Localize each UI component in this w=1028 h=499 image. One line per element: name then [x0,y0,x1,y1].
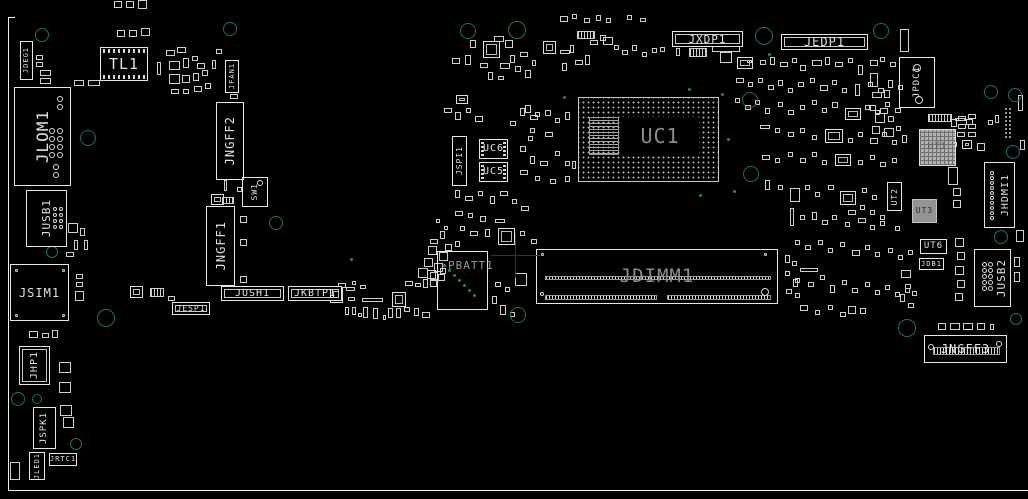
pin-ticks-top [103,49,145,53]
smd-pad [36,62,43,67]
smd-pad [436,219,440,223]
pin-header [577,31,595,39]
smd-pad [822,108,827,113]
smd-pad [492,296,497,304]
qfn-chip [498,228,515,245]
smd-pad [627,15,632,20]
smd-pad [570,45,574,53]
pin-dot [990,216,994,220]
smd-pad [606,18,611,23]
board-outline [8,17,15,18]
smd-pad [652,48,657,53]
smd-pad [455,241,460,247]
pin-dot [53,213,57,217]
smd-pad [1014,257,1020,267]
smd-pad [908,303,914,308]
smd-pad [957,252,965,260]
smd-pad [575,60,583,65]
smd-pad [812,100,817,105]
smd-pad [40,78,51,84]
dimm-hole [540,292,544,296]
smd-pad [192,56,198,61]
fiducial-dot [563,96,566,99]
smd-pad [240,216,247,223]
smd-pad [415,283,421,287]
smd-pad [788,110,794,115]
smd-pad [912,291,917,296]
smd-pad [138,0,147,9]
pin-dot [990,206,994,210]
pin-dot-column [1004,107,1012,139]
smd-pad [966,119,973,125]
component-jkbtp1: JKBTP1 [288,286,342,301]
component-tl1: TL1 [100,47,148,81]
smd-pad [515,66,521,72]
smd-pad [632,45,637,51]
smd-pad [938,323,946,330]
smd-pad [360,285,366,289]
pin-dot [57,96,63,102]
ut6-label: UT6 [924,242,943,251]
bga-stripe-block [589,117,619,155]
smd-pad [800,158,806,163]
ut3-label: UT3 [916,207,933,215]
jngff3-label: JNGFF3 [941,343,990,355]
smd-pad [171,89,179,94]
smd-pad [535,176,540,181]
smd-pad [898,255,903,260]
mounting-hole [223,22,237,36]
smd-pad [800,305,808,311]
mounting-hole [460,23,476,39]
smd-pad [792,58,797,63]
smd-pad [84,240,88,250]
smd-pad [884,128,894,137]
pin-dot [990,186,994,190]
smd-pad [748,82,753,87]
smd-pad [955,293,963,301]
smd-pad [788,132,794,137]
dotted-diagonal [473,294,476,297]
jhp1-label: JHP1 [30,351,40,379]
pin-dot [982,286,987,291]
tl1-label: TL1 [109,57,139,72]
smd-pad [352,281,356,285]
smd-pad [622,50,628,55]
smd-pad [798,82,804,87]
smd-pad [828,185,834,190]
component-jpdc1: JPDC1 [899,57,935,108]
mounting-hole [46,246,58,258]
dotted-diagonal [458,279,461,282]
smd-pad [842,88,847,93]
smd-pad [676,48,680,56]
smd-pad [790,188,800,202]
smd-pad [885,285,890,290]
pin-header [928,114,952,122]
smd-pad [858,218,866,223]
jusb2-label: JUSB2 [996,259,1007,297]
component-jusb1: JUSB1 [26,190,67,247]
smd-pad [901,270,911,278]
pin-dot [990,191,994,195]
component-jrtc1: JRTC1 [49,453,77,466]
smd-pad [790,208,794,226]
smd-pad [465,196,473,201]
smd-pad [848,138,853,143]
smd-pad [892,158,897,163]
smd-pad [822,220,828,225]
smd-pad [520,52,528,57]
jxdp1-label: JXDP1 [688,34,726,45]
smd-pad [363,307,368,318]
smd-pad [572,161,576,169]
smd-pad [770,57,775,65]
smd-pad [59,382,71,393]
component-jdb1: JDB1 [919,258,944,270]
smd-pad [466,108,471,113]
pin-dot [59,213,63,217]
smd-pad [224,180,227,191]
smd-pad [870,73,878,87]
smd-pad [346,287,355,291]
smd-pad [596,15,601,21]
smd-pad [555,151,560,156]
smd-pad [870,138,878,144]
smd-pad [795,240,800,245]
smd-pad [808,282,814,287]
smd-pad [75,291,84,301]
smd-pad [614,45,619,50]
pin-dot [988,280,993,285]
component-sw1: SW1 [242,177,268,207]
smd-pad [76,282,83,287]
smd-pad [895,226,900,231]
smd-pad [444,226,448,230]
smd-pad [63,417,74,428]
smd-pad [815,192,820,197]
smd-pad [169,74,180,84]
smd-pad [884,90,890,98]
component-jdeg1: JDEG1 [20,41,33,80]
smd-pad [404,307,410,312]
smd-pad [520,231,525,236]
smd-pad [59,362,71,373]
component-jspi1: JSPI1 [452,136,467,186]
smd-pad [860,205,865,210]
smd-pad [880,221,885,226]
qfn-chip [825,129,843,143]
smd-pad [74,80,84,86]
jdimm1-label: JDIMM1 [620,267,695,286]
mounting-hole [508,21,526,39]
pin-dot [990,181,994,185]
smd-pad [812,212,817,220]
mounting-hole [742,92,758,108]
component-jdimm1: JDIMM1 [536,249,778,304]
pin-dot [988,274,993,279]
smd-pad [812,60,822,66]
ut2-label: UT2 [891,188,899,205]
crosshair-vertical [515,233,516,278]
smd-pad [855,84,860,96]
smd-pad [995,115,999,123]
smd-pad [872,195,877,200]
smd-pad [490,196,495,204]
pin-dot [988,262,993,267]
smd-pad [848,306,856,314]
smd-pad [52,330,58,338]
smd-pad [858,160,863,165]
smd-pad [183,58,189,68]
smd-pad [520,170,528,175]
smd-pad [900,29,909,52]
smd-pad [902,135,907,143]
jedp1-label: JEDP1 [804,36,845,48]
smd-pad [530,156,535,164]
smd-pad [36,55,43,60]
smd-pad [10,462,20,480]
smd-pad [205,83,211,89]
jsim1-label: JSIM1 [19,287,60,299]
component-ut6: UT6 [920,239,947,254]
smd-pad [805,245,811,250]
smd-pad [963,323,973,330]
smd-pad [510,55,515,63]
smd-pad [888,248,893,253]
qfn-chip [392,292,406,307]
smd-pad [460,226,465,231]
smd-pad [872,92,882,98]
smd-pad [216,49,222,54]
smd-pad [858,132,863,137]
smd-pad [60,405,72,416]
qfn-chip [840,191,856,205]
smd-pad [418,268,428,278]
component-hole [996,341,1002,347]
pin-dot [988,286,993,291]
smd-pad [800,128,805,133]
smd-pad [168,296,175,301]
smd-pad [230,94,238,99]
pin-dot [990,176,994,180]
smd-pad [114,1,122,8]
smd-pad [765,108,770,114]
smd-pad [1014,272,1020,282]
smd-pad [505,40,513,48]
smd-pad [862,188,867,193]
qfn-chip [483,41,500,58]
smd-pad [510,121,516,126]
smd-pad [953,188,961,196]
smd-pad [840,312,846,317]
smd-pad [212,60,216,69]
pin-dot [57,136,63,142]
smd-pad [495,282,501,287]
smd-pad [958,124,966,129]
qfn-chip [543,41,556,54]
smd-pad [521,206,529,211]
mounting-hole [269,216,283,230]
smd-pad [183,89,189,94]
mounting-hole [743,166,759,182]
dotted-diagonal [443,264,446,267]
dimm-hole [764,253,767,256]
smd-pad [348,297,355,301]
smd-pad [760,125,770,129]
smd-pad [822,160,827,165]
mounting-hole [11,392,25,406]
component-jusb2: JUSB2 [974,249,1011,307]
component-jfan1: JFAN1 [225,60,239,93]
smd-pad [430,280,437,287]
smd-pad [141,28,150,36]
qfn-chip [962,140,972,149]
qfn-chip [456,95,468,104]
smd-pad [535,112,540,117]
component-jush1: JUSH1 [221,286,284,301]
smd-pad [388,308,393,318]
corner-dot [62,269,65,272]
jrtc1-label: JRTC1 [50,456,76,463]
board-outline [8,490,1028,491]
qfn-chip [835,154,851,166]
smd-pad [800,105,805,110]
component-ut1: UT1 [919,129,956,166]
component-jhp1: JHP1 [19,346,50,385]
pin-dot [990,211,994,215]
smd-pad [642,52,647,57]
smd-pad [585,55,590,65]
smd-pad [870,155,875,160]
smd-pad [478,191,483,196]
smd-pad [545,110,551,116]
smd-pad [505,287,510,292]
jkbtp1-label: JKBTP1 [294,289,336,299]
component-jlom1: JLOM1 [14,87,71,186]
pin-dot [53,172,59,178]
smd-pad [480,216,486,222]
smd-pad [820,85,828,91]
component-pbatt1: PBATT1 [437,251,488,310]
smd-pad [908,250,913,255]
smd-pad [778,185,783,190]
jesp1-label: JESP1 [176,305,205,313]
smd-pad [765,180,770,190]
smd-pad [405,281,413,286]
smd-pad [240,239,247,246]
pin-dot [53,207,57,211]
jpdc1-label: JPDC1 [913,66,922,98]
component-jhdmi1: JHDMI1 [984,162,1015,228]
smd-pad [495,219,505,223]
jhdmi1-label: JHDMI1 [1001,174,1011,216]
mounting-hole [873,23,889,39]
smd-pad [812,135,817,140]
smd-pad [880,215,885,220]
smd-pad [396,308,401,318]
smd-pad [345,307,349,315]
smd-pad [818,240,823,245]
smd-pad [584,18,590,23]
smd-pad [785,255,790,263]
jush1-label: JUSH1 [235,289,270,299]
smd-pad [977,323,985,330]
component-uc1: UC1 [578,97,719,182]
smd-pad [488,72,493,80]
smd-pad [736,78,744,83]
smd-pad [126,1,134,8]
component-ut3: UT3 [912,199,937,223]
mounting-hole [994,230,1008,244]
jlom1-label: JLOM1 [35,110,51,163]
pin-dot [982,274,987,279]
jled1-label: JLED1 [34,453,41,479]
smd-pad [735,98,740,103]
pin-dot [53,225,57,229]
pin-dot [59,219,63,223]
jngff1-label: JNGFF1 [215,221,227,270]
smd-pad [880,162,886,167]
smd-pad [775,158,780,163]
smd-pad [875,113,885,123]
smd-pad [444,108,452,113]
smd-pad [166,50,175,56]
smd-pad [800,65,806,71]
smd-pad [892,140,897,145]
smd-pad [197,63,205,69]
smd-pad [430,239,438,244]
fiducial-dot [688,88,691,91]
smd-pad [888,80,893,88]
smd-pad [358,313,362,317]
crosshair-horizontal [491,255,541,256]
smd-pad [562,63,567,71]
smd-pad [905,284,911,289]
component-jesp1: JESP1 [172,302,210,315]
smd-pad [825,57,830,65]
smd-pad [800,215,805,220]
smd-pad [455,190,460,198]
smd-pad [875,252,880,257]
component-hole [928,344,934,350]
smd-pad [80,228,85,236]
fiducial-dot [727,138,730,141]
smd-pad [565,176,570,182]
smd-pad [828,305,833,310]
pin-dot [982,262,987,267]
smd-pad [870,105,876,111]
jdeg1-label: JDEG1 [23,47,30,73]
component-uc6: UC6 [479,139,508,159]
fiducial-dot [768,53,771,56]
component-jled1: JLED1 [29,452,45,480]
smd-pad [525,105,531,113]
smd-pad [758,78,763,83]
pin-ticks-bottom [103,75,145,79]
dotted-diagonal [463,284,466,287]
smd-pad [572,14,577,19]
smd-pad [865,245,870,250]
smd-pad [835,62,843,67]
smd-pad [848,58,853,63]
pin-dot [57,152,63,158]
smd-pad [414,308,419,316]
smd-pad [40,70,51,76]
smd-pad [29,331,38,338]
smd-pad [955,238,964,247]
smd-pad [373,308,378,319]
